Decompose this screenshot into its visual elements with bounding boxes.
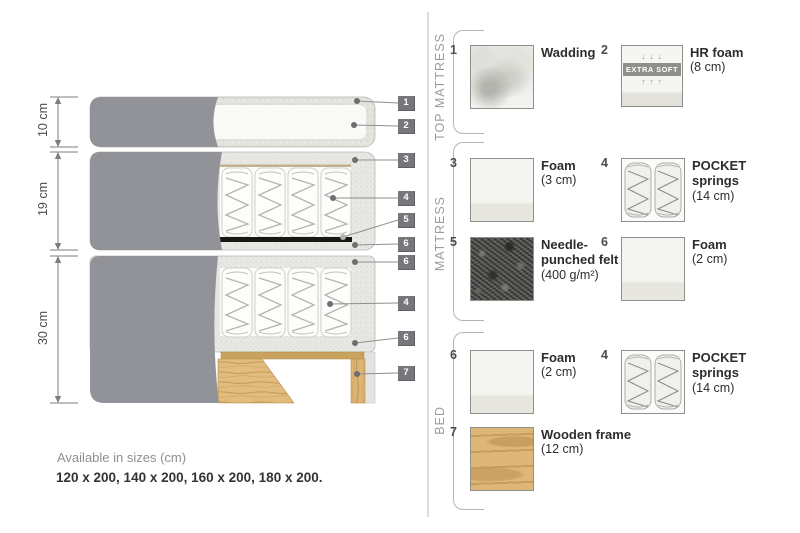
callout-tag-6c: 6 (398, 331, 415, 346)
section-label-bed: BED (433, 406, 447, 435)
felt-swatch (470, 237, 534, 301)
mattress-section (90, 152, 375, 250)
top-mattress-section (90, 97, 375, 147)
legend-item-number: 6 (450, 348, 464, 362)
hr-foam-swatch: ↓ ↓ ↓ EXTRA SOFT ↑ ↑ ↑ (621, 45, 683, 107)
callout-tag-6: 6 (398, 237, 415, 252)
callout-tag-6b: 6 (398, 255, 415, 270)
bed-section (90, 256, 375, 403)
foam-swatch (470, 158, 534, 222)
legend-item-bed-foam: 6 Foam (2 cm) (450, 350, 621, 414)
legend-item-number: 4 (601, 156, 615, 170)
foam-swatch (470, 350, 534, 414)
callout-tag-4b: 4 (398, 296, 415, 311)
legend-item-detail: (14 cm) (692, 189, 772, 204)
vertical-divider (427, 12, 429, 517)
legend-item-number: 5 (450, 235, 464, 249)
foam-swatch (621, 237, 685, 301)
legend-item-number: 1 (450, 43, 464, 57)
legend-item-foam-3cm: 3 Foam (3 cm) (450, 158, 621, 222)
bed-construction-infographic: { "colors": { "fabric_gray": "#929399", … (0, 0, 800, 533)
callout-tag-5: 5 (398, 213, 415, 228)
legend-item-detail: (2 cm) (692, 252, 772, 267)
legend-item-hr-foam: 2 ↓ ↓ ↓ EXTRA SOFT ↑ ↑ ↑ HR foam (8 cm) (601, 45, 770, 107)
arrows-down-icon: ↓ ↓ ↓ (641, 53, 662, 61)
wadding-swatch (470, 45, 534, 109)
dimension-label-mattress: 19 cm (36, 169, 50, 229)
callout-tag-4: 4 (398, 191, 415, 206)
callout-tag-7: 7 (398, 366, 415, 381)
legend-item-name: Wooden frame (541, 427, 653, 442)
callout-tag-3: 3 (398, 153, 415, 168)
legend-item-name: POCKET springs (692, 350, 772, 381)
section-label-mattress: MATTRESS (433, 196, 447, 271)
legend-item-name: HR foam (690, 45, 770, 60)
pocket-springs-swatch (621, 350, 685, 414)
legend-item-wooden-frame: 7 Wooden frame (12 cm) (450, 427, 653, 491)
extra-soft-badge: EXTRA SOFT (623, 63, 681, 76)
available-sizes-title: Available in sizes (cm) (57, 450, 186, 465)
callout-tag-1: 1 (398, 96, 415, 111)
section-label-top-mattress: TOP MATTRESS (433, 33, 447, 141)
wood-swatch (470, 427, 534, 491)
legend-item-number: 4 (601, 348, 615, 362)
legend-item-name: POCKET springs (692, 158, 772, 189)
legend-item-foam-2cm: 6 Foam (2 cm) (601, 237, 772, 301)
arrows-up-icon: ↑ ↑ ↑ (641, 78, 662, 86)
legend-item-needle-punched-felt: 5 Needle-punched felt (400 g/m²) (450, 237, 621, 301)
dimension-label-bed: 30 cm (36, 298, 50, 358)
legend-item-wadding: 1 Wadding (450, 45, 621, 109)
pocket-springs-swatch (621, 158, 685, 222)
legend-item-name: Foam (692, 237, 772, 252)
legend-item-number: 3 (450, 156, 464, 170)
legend-item-number: 2 (601, 43, 615, 57)
legend-item-detail: (14 cm) (692, 381, 772, 396)
legend-item-detail: (12 cm) (541, 442, 653, 457)
dimension-lines (50, 97, 78, 403)
legend-item-pocket-springs: 4 POCKET springs (14 cm) (601, 158, 772, 222)
dimension-label-top-mattress: 10 cm (36, 90, 50, 150)
available-sizes-list: 120 x 200, 140 x 200, 160 x 200, 180 x 2… (56, 470, 323, 485)
callout-tag-2: 2 (398, 119, 415, 134)
legend-item-number: 7 (450, 425, 464, 439)
legend-item-detail: (8 cm) (690, 60, 770, 75)
legend-item-number: 6 (601, 235, 615, 249)
legend-item-bed-pocket-springs: 4 POCKET springs (14 cm) (601, 350, 772, 414)
